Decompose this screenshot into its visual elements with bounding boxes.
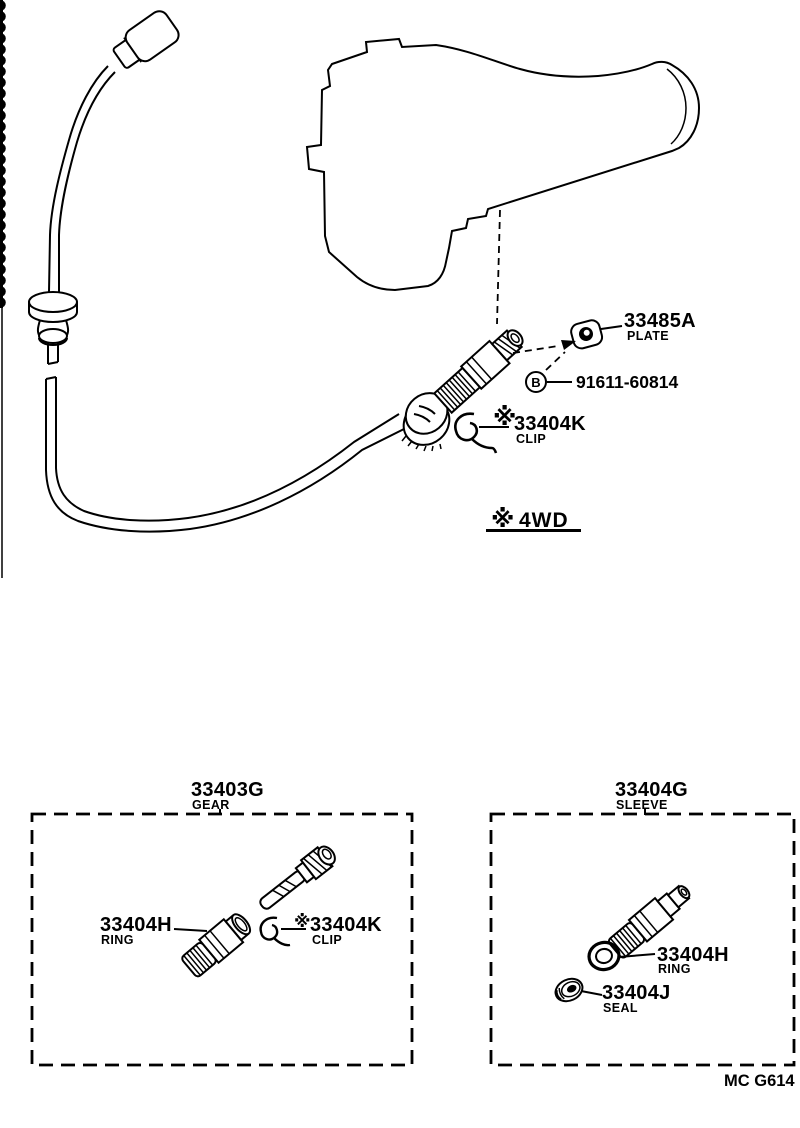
transmission-housing	[307, 39, 699, 290]
sleeve-box-seal	[552, 975, 586, 1006]
cable-bottom-curve-inner	[56, 414, 399, 521]
gear-kit-box: 33403G GEAR 33404H RING	[32, 779, 412, 1065]
bolt-part-number: 91611-60814	[576, 372, 678, 392]
plate-leader-line	[601, 326, 622, 329]
sleeve-box-ring-label: RING	[658, 962, 691, 976]
driven-gear-assembly	[433, 323, 530, 414]
note-4wd: ※ 4WD	[486, 506, 581, 533]
parts-diagram-page: 33485A PLATE B 91611-60814 ※ 33404K CLIP…	[0, 0, 800, 1128]
bolt-marker-letter: B	[531, 375, 540, 390]
gear-box-clip-label: CLIP	[312, 933, 342, 947]
plate-part	[569, 319, 622, 351]
note-4wd-mark: ※	[491, 506, 514, 533]
plate-part-label: PLATE	[627, 329, 669, 343]
gear-box-label: GEAR	[192, 798, 230, 812]
speedometer-cable	[29, 8, 461, 532]
gear-box-sleeve	[179, 909, 255, 980]
gear-box-clip-4wd-mark: ※	[294, 912, 311, 931]
note-4wd-text: 4WD	[519, 509, 569, 532]
note-4wd-underline	[486, 529, 581, 532]
gear-box-ring-leader	[174, 929, 207, 931]
bolt-callout: B 91611-60814	[526, 372, 678, 392]
housing-tail-rim	[667, 69, 686, 144]
sleeve-box-seal-leader	[581, 991, 602, 995]
sleeve-box-label: SLEEVE	[616, 798, 668, 812]
clip-part-label: CLIP	[516, 432, 546, 446]
gear-box-driven-gear	[255, 842, 340, 916]
cable-lower-run	[46, 377, 56, 470]
cable-inner-line	[59, 72, 115, 292]
sleeve-box-seal-label: SEAL	[603, 1001, 638, 1015]
gear-box-ring-label: RING	[101, 933, 134, 947]
cable-connector	[109, 8, 182, 74]
cable-grommet	[29, 292, 77, 345]
housing-gear-leader	[497, 210, 500, 324]
cable-outer-line	[49, 66, 108, 292]
cable-upper-stem	[48, 343, 58, 364]
sleeve-kit-box: 33404G SLEEVE 33404H RING	[491, 779, 794, 1065]
clip-4wd-mark: ※	[493, 404, 516, 431]
page-edge	[0, 0, 8, 578]
page-code: MC G614	[724, 1072, 795, 1090]
parts-diagram: 33485A PLATE B 91611-60814 ※ 33404K CLIP…	[0, 0, 800, 1128]
